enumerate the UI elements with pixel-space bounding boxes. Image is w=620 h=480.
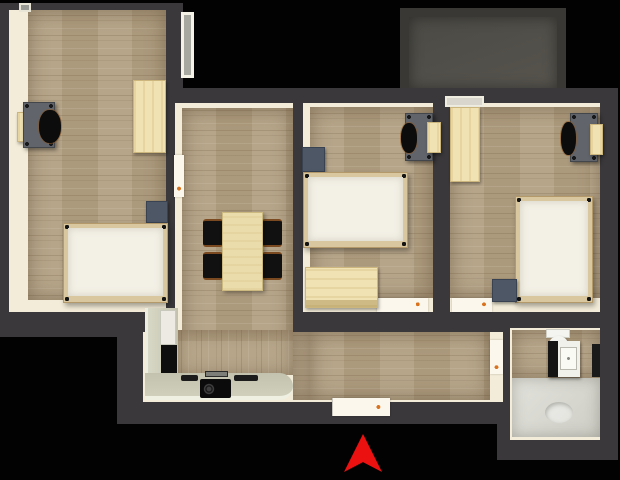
dining-chair — [203, 219, 223, 247]
bathroom-mirror — [592, 344, 600, 377]
floor-living-hall-opening — [293, 332, 310, 400]
bed-bedroom-left — [63, 223, 168, 303]
desk-chair-bedroom-left — [39, 110, 61, 143]
nightstand-bedroom-left — [146, 201, 168, 223]
window-bedroom-left-north — [19, 3, 31, 12]
door-entrance — [332, 398, 390, 416]
balcony-door-window — [445, 96, 484, 107]
floorplan-render — [0, 0, 620, 480]
wardrobe-bedroom-right — [450, 107, 480, 182]
door-bedroom-right — [452, 298, 492, 312]
floor-hallway — [310, 332, 490, 400]
kitchen-vent-grill — [205, 371, 228, 377]
mattress — [308, 177, 403, 241]
kitchen-tall-black-appliance — [161, 345, 177, 375]
mattress — [68, 228, 163, 296]
kitchen-white-appliance — [160, 310, 176, 345]
bathroom-vanity-side-panel — [548, 341, 558, 377]
door-bedroom-left — [174, 155, 184, 197]
nightstand-bedroom-right — [492, 279, 517, 302]
door-bathroom — [490, 340, 503, 374]
desk-chair-bedroom-right — [561, 122, 576, 155]
dining-table — [222, 212, 263, 291]
wall-shelf-bedroom-middle — [427, 122, 441, 153]
window-bedroom-left-east — [181, 12, 194, 78]
bed-bedroom-right — [515, 196, 593, 303]
kitchen-drawer — [181, 375, 198, 381]
entrance-arrow-icon — [344, 434, 382, 472]
dining-chair — [262, 252, 282, 280]
balcony — [400, 8, 566, 98]
floor-kitchen — [177, 330, 293, 375]
wall-shelf-bedroom-right — [590, 124, 603, 155]
kitchen-cooktop — [200, 379, 231, 398]
desk-chair-bedroom-middle — [401, 123, 417, 153]
mattress — [520, 201, 588, 296]
dresser-bedroom-middle — [305, 267, 378, 308]
dining-chair — [203, 252, 223, 280]
shower-drain — [545, 402, 573, 423]
nightstand-bedroom-middle — [302, 147, 325, 172]
bed-bedroom-middle — [303, 172, 408, 248]
wardrobe-bedroom-left — [133, 80, 166, 153]
dining-chair — [262, 219, 282, 247]
kitchen-drawer — [234, 375, 258, 381]
bathroom-sink — [560, 347, 577, 370]
door-bedroom-middle — [377, 298, 428, 312]
